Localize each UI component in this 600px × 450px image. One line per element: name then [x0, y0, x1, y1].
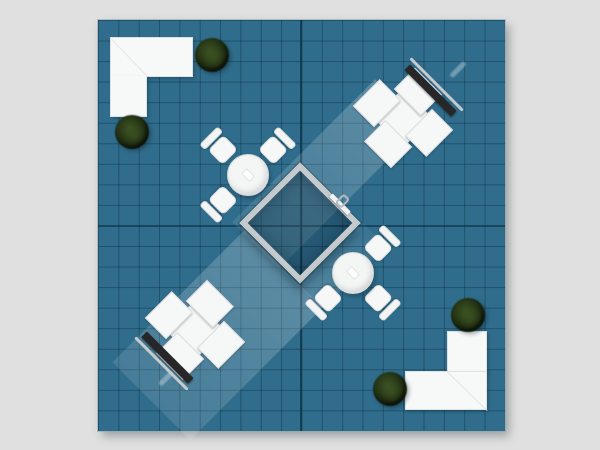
potted-plant[interactable] — [451, 298, 485, 332]
booth-floor-grid — [98, 20, 505, 431]
potted-plant[interactable] — [195, 38, 229, 72]
potted-plant[interactable] — [115, 115, 149, 149]
workstation-cross-bottom-left[interactable] — [127, 262, 263, 398]
meeting-room-door-handle — [335, 193, 351, 209]
potted-plant[interactable] — [373, 372, 407, 406]
counter-segment — [405, 371, 487, 410]
booth-floorplan-scene — [0, 0, 600, 450]
light-glint-top-right — [449, 61, 467, 79]
counter-segment — [110, 37, 193, 77]
counter-segment — [110, 76, 147, 117]
workstation-cross-top-right[interactable] — [335, 50, 471, 186]
counter-segment — [447, 331, 487, 372]
